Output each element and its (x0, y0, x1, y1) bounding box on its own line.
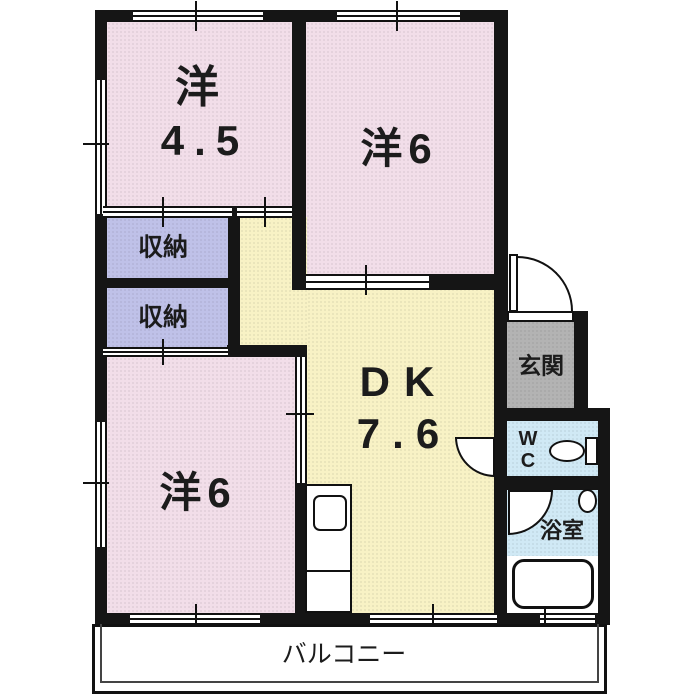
window-top-east (337, 10, 460, 22)
window-left-upper (95, 80, 107, 214)
window-tick (162, 339, 164, 365)
label-wc-line2: C (519, 450, 538, 472)
wall (494, 10, 508, 321)
label-wc: W C (519, 428, 538, 472)
wall (429, 274, 494, 290)
sliding-door-6lower-to-dk (295, 357, 307, 483)
label-closet-upper: 収納 (138, 236, 188, 261)
label-balcony: バルコニー (282, 643, 407, 668)
wall (494, 311, 507, 613)
label-room-western-6-lower: 洋6 (159, 472, 236, 514)
sliding-door-closet-lower (103, 347, 228, 357)
window-tick (83, 143, 109, 145)
label-bathroom: 浴室 (540, 520, 584, 542)
window-tick (162, 197, 164, 227)
window-tick (396, 1, 398, 31)
room-western-4-5 (107, 22, 292, 206)
label-closet-lower: 収納 (138, 306, 188, 331)
window-left-lower (95, 422, 107, 547)
entrance-threshold (507, 311, 574, 322)
sliding-door-closet-upper (103, 206, 232, 218)
wall (494, 408, 610, 421)
label-room-western-4-5-size: 4.5 (161, 120, 249, 162)
wall (598, 415, 610, 625)
wall (574, 311, 588, 413)
wash-basin (578, 489, 597, 513)
label-dk-name: DK (360, 361, 449, 403)
bathtub (512, 559, 594, 609)
wall (507, 476, 598, 490)
window-tick (365, 265, 367, 295)
window-tick (195, 1, 197, 31)
label-room-western-4-5-name: 洋 (175, 66, 219, 110)
label-dk-size: 7.6 (357, 413, 451, 455)
window-tick (83, 482, 109, 484)
window-top-west (133, 10, 263, 22)
window-tick (286, 413, 314, 415)
toilet-bowl (549, 440, 585, 462)
window-tick (264, 197, 266, 227)
kitchen-counter-divider (305, 570, 352, 572)
label-wc-line1: W (519, 428, 538, 450)
kitchen-sink (313, 495, 347, 531)
wall (95, 278, 240, 288)
sliding-door-6upper-to-dk (306, 274, 429, 290)
label-entrance: 玄関 (518, 355, 564, 378)
entrance-door-swing-arc (517, 256, 573, 311)
label-room-western-6-upper: 洋6 (360, 128, 437, 170)
wall (292, 10, 306, 290)
toilet-tank (585, 437, 598, 465)
floorplan: 洋 4.5 洋6 収納 収納 DK 7.6 洋6 玄関 W C 浴室 バルコニー (0, 0, 700, 700)
